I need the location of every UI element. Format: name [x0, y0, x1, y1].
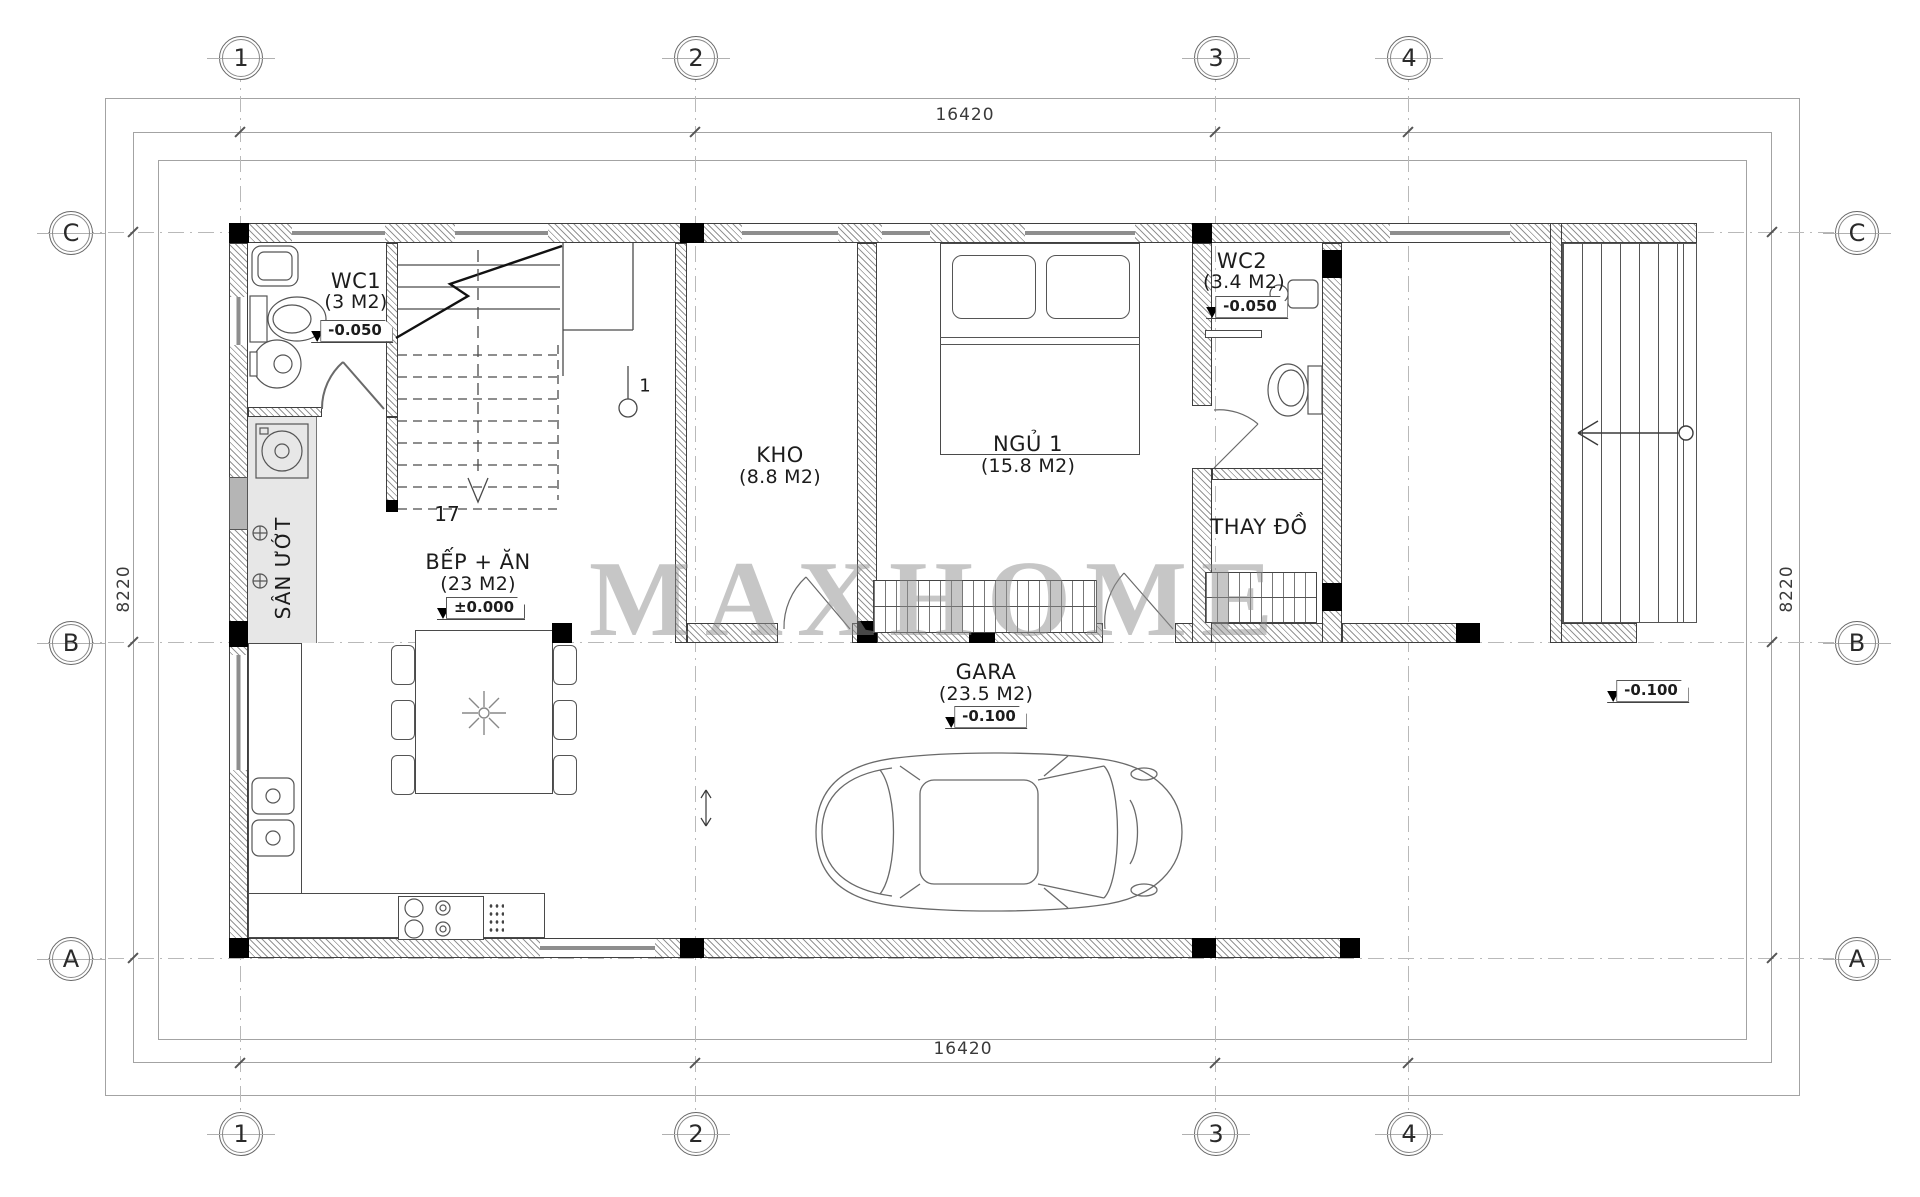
- pillow: [1046, 255, 1130, 319]
- grid-bubble-col-3-top: 3: [1194, 36, 1238, 80]
- window: [292, 223, 385, 243]
- window: [1390, 223, 1510, 243]
- wall-bottom: [229, 938, 1360, 958]
- wall-left: [229, 243, 248, 958]
- grid-bubble-row-B-right: B: [1835, 621, 1879, 665]
- chair: [553, 645, 577, 685]
- room-label-wc2: WC2: [1217, 249, 1267, 273]
- column: [229, 938, 249, 958]
- grid-line-4: [1408, 36, 1409, 1155]
- grid-bubble-row-A-left: A: [49, 937, 93, 981]
- elevation-badge-wc1: -0.050: [311, 320, 393, 343]
- grid-label: A: [63, 945, 79, 973]
- blanket-line: [940, 344, 1140, 345]
- watermark: MAXHOME: [589, 538, 1287, 662]
- grid-bubble-col-1-bottom: 1: [219, 1112, 263, 1156]
- wall-row-B-segment: [1550, 623, 1637, 643]
- grid-bubble-col-2-bottom: 2: [674, 1112, 718, 1156]
- wall-wc2-left-upper: [1192, 243, 1212, 406]
- room-label-thay-do: THAY ĐỒ: [1210, 515, 1307, 539]
- column: [1322, 583, 1342, 611]
- column: [1322, 250, 1342, 278]
- chair: [391, 755, 415, 795]
- dimension-left: 8220: [114, 565, 134, 612]
- wall-stair: [386, 417, 398, 512]
- column: [229, 223, 249, 243]
- window: [229, 655, 248, 770]
- wc2-shelf: [1205, 330, 1262, 338]
- grid-label: 1: [233, 44, 248, 72]
- stove: [398, 896, 484, 940]
- chair: [391, 645, 415, 685]
- grid-bubble-col-4-bottom: 4: [1387, 1112, 1431, 1156]
- side-door: [229, 477, 248, 530]
- dimension-top: 16420: [935, 105, 994, 125]
- grid-label: C: [63, 219, 80, 247]
- dining-table: [415, 630, 553, 794]
- column: [1456, 623, 1480, 643]
- stair-riser-count: 17: [434, 502, 459, 526]
- grid-label: 3: [1208, 44, 1223, 72]
- grid-label: 4: [1401, 44, 1416, 72]
- elevation-badge-bep-an: ±0.000: [437, 597, 525, 620]
- grid-label: 1: [233, 1120, 248, 1148]
- grid-label: C: [1849, 219, 1866, 247]
- chair: [553, 700, 577, 740]
- room-label-san-uot: SÂN ƯỚT: [271, 517, 295, 620]
- window: [742, 223, 838, 243]
- section-marker-label: 1: [639, 376, 650, 397]
- column: [386, 500, 398, 512]
- room-label-gara: GARA: [956, 660, 1017, 684]
- grid-bubble-col-4-top: 4: [1387, 36, 1431, 80]
- grid-bubble-col-1-top: 1: [219, 36, 263, 80]
- elevation-badge-gara: -0.100: [945, 706, 1027, 729]
- grid-label: B: [63, 629, 79, 657]
- grid-line-A: [48, 958, 1878, 959]
- column: [680, 223, 704, 243]
- room-label-kho: KHO: [756, 443, 804, 467]
- room-area-ngu1: (15.8 M2): [981, 455, 1075, 477]
- grid-bubble-col-3-bottom: 3: [1194, 1112, 1238, 1156]
- chair: [391, 700, 415, 740]
- steps-edge-line: [1683, 243, 1684, 623]
- window: [882, 223, 930, 243]
- room-label-bep-an: BẾP + ĂN: [425, 550, 530, 574]
- window: [540, 938, 655, 958]
- grid-label: 3: [1208, 1120, 1223, 1148]
- grid-label: 4: [1401, 1120, 1416, 1148]
- column: [1192, 223, 1212, 243]
- dimension-bottom: 16420: [933, 1039, 992, 1059]
- column: [1192, 938, 1216, 958]
- grid-bubble-col-2-top: 2: [674, 36, 718, 80]
- pillow: [952, 255, 1036, 319]
- elevation-value: -0.100: [1616, 680, 1689, 702]
- grid-bubble-row-A-right: A: [1835, 937, 1879, 981]
- column: [1340, 938, 1360, 958]
- grid-label: B: [1849, 629, 1865, 657]
- chair: [553, 755, 577, 795]
- room-label-wc1: WC1: [331, 269, 381, 293]
- wall-wc1-bottom: [248, 407, 322, 417]
- elevation-value: -0.050: [320, 320, 393, 342]
- elevation-badge-wc2: -0.050: [1206, 296, 1288, 319]
- blanket-line: [940, 337, 1140, 338]
- floor-plan-canvas: 16420 16420 8220 8220 1 2 3 4 1 2 3 4 C …: [0, 0, 1920, 1197]
- grid-label: 2: [688, 44, 703, 72]
- column: [680, 938, 704, 958]
- elevation-badge-yard: -0.100: [1607, 680, 1689, 703]
- room-area-kho: (8.8 M2): [739, 466, 821, 488]
- column: [552, 623, 572, 643]
- room-area-gara: (23.5 M2): [939, 683, 1033, 705]
- window: [229, 297, 248, 345]
- grid-bubble-row-B-left: B: [49, 621, 93, 665]
- room-area-wc1: (3 M2): [324, 291, 387, 313]
- elevation-value: -0.050: [1215, 296, 1288, 318]
- window: [455, 223, 548, 243]
- grid-bubble-row-C-left: C: [49, 211, 93, 255]
- elevation-value: -0.100: [954, 706, 1027, 728]
- grid-label: A: [1849, 945, 1865, 973]
- room-area-wc2: (3.4 M2): [1203, 271, 1285, 293]
- dimension-right: 8220: [1777, 565, 1797, 612]
- stove-controls: [488, 902, 504, 936]
- entrance-steps: [1562, 243, 1697, 623]
- grid-bubble-row-C-right: C: [1835, 211, 1879, 255]
- elevation-value: ±0.000: [446, 597, 525, 619]
- room-label-ngu1: NGỦ 1: [993, 432, 1063, 456]
- room-area-bep-an: (23 M2): [440, 573, 516, 595]
- wall-porch-left: [1550, 223, 1562, 643]
- window: [1025, 223, 1135, 243]
- grid-label: 2: [688, 1120, 703, 1148]
- column: [229, 621, 248, 647]
